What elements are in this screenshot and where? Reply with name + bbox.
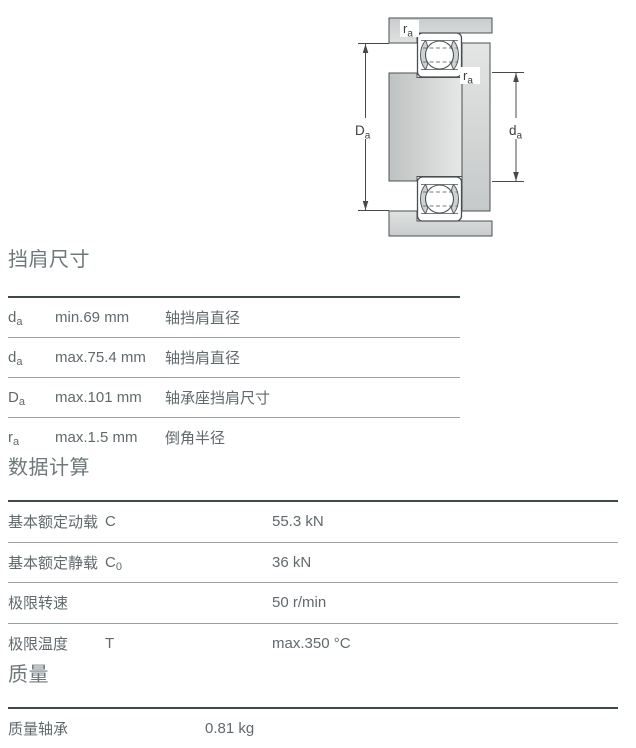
ball <box>426 41 454 69</box>
label-cell: 基本额定动载 <box>8 511 105 532</box>
table-row: ra max.1.5 mm 倒角半径 <box>8 418 460 457</box>
table-row: 极限温度 T max.350 °C <box>8 624 618 664</box>
calculation-data-table: 基本额定动载 C 55.3 kN 基本额定静载 C0 36 kN 极限转速 50… <box>8 500 618 663</box>
section-title-shoulder-dimensions: 挡肩尺寸 <box>8 247 90 273</box>
value-cell: min.69 mm <box>55 309 165 326</box>
table-row: da min.69 mm 轴挡肩直径 <box>8 298 460 338</box>
description-cell: 倒角半径 <box>165 427 460 448</box>
value-cell: 36 kN <box>272 554 618 571</box>
table-row: 极限转速 50 r/min <box>8 583 618 624</box>
value-cell: max.1.5 mm <box>55 429 165 446</box>
label-cell: 质量轴承 <box>8 718 205 739</box>
value-cell: max.101 mm <box>55 389 165 406</box>
section-title-calculation-data: 数据计算 <box>8 455 90 481</box>
value-cell: max.350 °C <box>272 635 618 652</box>
bearing-section-bottom <box>418 177 462 221</box>
value-cell: 50 r/min <box>272 594 618 611</box>
value-cell: max.75.4 mm <box>55 349 165 366</box>
symbol-cell: ra <box>8 429 55 446</box>
description-cell: 轴挡肩直径 <box>165 307 460 328</box>
table-row: 基本额定静载 C0 36 kN <box>8 543 618 584</box>
ball <box>426 185 454 213</box>
section-title-mass: 质量 <box>8 662 49 688</box>
symbol-cell: da <box>8 349 55 366</box>
shoulder-dimensions-table: da min.69 mm 轴挡肩直径 da max.75.4 mm 轴挡肩直径 … <box>8 296 460 457</box>
symbol-cell: da <box>8 309 55 326</box>
description-cell: 轴承座挡肩尺寸 <box>165 387 460 408</box>
symbol-cell: Da <box>8 389 55 406</box>
symbol-cell: C <box>105 513 272 530</box>
table-row: da max.75.4 mm 轴挡肩直径 <box>8 338 460 378</box>
table-row: 基本额定动载 C 55.3 kN <box>8 502 618 543</box>
bearing-diagram: Da da ra ra <box>340 0 636 240</box>
bearing-section-top <box>418 33 462 77</box>
symbol-cell: T <box>105 635 272 652</box>
table-row: 质量轴承 0.81 kg <box>8 709 618 748</box>
symbol-cell: C0 <box>105 554 272 571</box>
table-row: Da max.101 mm 轴承座挡肩尺寸 <box>8 378 460 418</box>
value-cell: 0.81 kg <box>205 720 618 737</box>
label-cell: 极限温度 <box>8 633 105 654</box>
label-cell: 基本额定静载 <box>8 552 105 573</box>
mass-table: 质量轴承 0.81 kg <box>8 707 618 748</box>
value-cell: 55.3 kN <box>272 513 618 530</box>
shaft <box>389 73 462 181</box>
description-cell: 轴挡肩直径 <box>165 347 460 368</box>
label-cell: 极限转速 <box>8 592 105 613</box>
